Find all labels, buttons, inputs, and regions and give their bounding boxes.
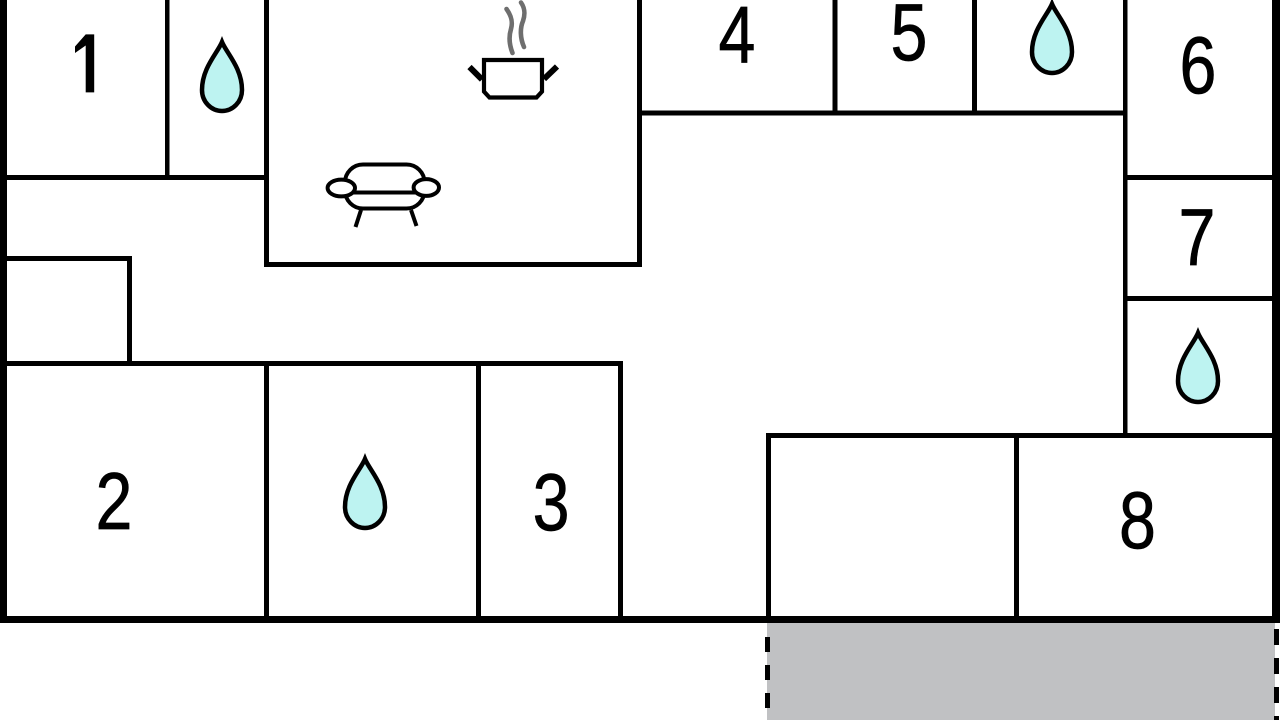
svg-text:6: 6 bbox=[1180, 20, 1217, 111]
svg-text:3: 3 bbox=[533, 457, 570, 548]
svg-text:7: 7 bbox=[1179, 192, 1216, 283]
svg-text:8: 8 bbox=[1119, 475, 1156, 566]
svg-text:5: 5 bbox=[891, 0, 928, 77]
svg-text:4: 4 bbox=[719, 0, 756, 80]
svg-text:2: 2 bbox=[96, 456, 133, 547]
